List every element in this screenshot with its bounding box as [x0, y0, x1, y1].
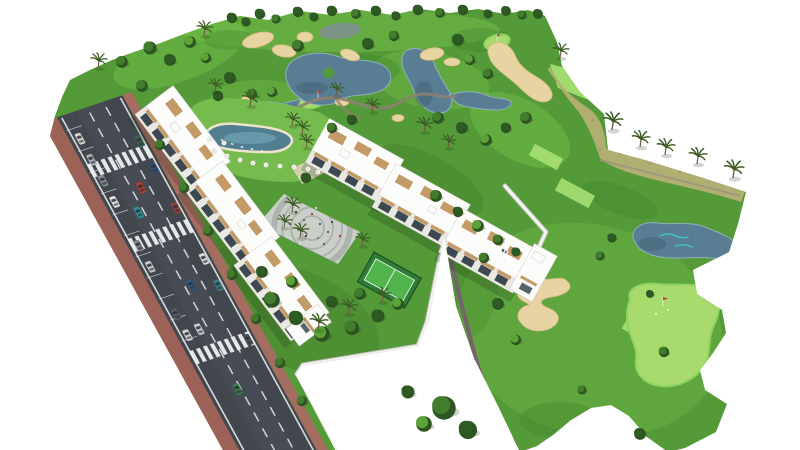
tree: [432, 396, 459, 420]
palm-tree: [632, 131, 650, 151]
tree: [255, 9, 267, 19]
palm-tree: [689, 148, 707, 168]
palm-tree: [725, 160, 744, 182]
putting-green: [627, 284, 719, 387]
tree: [459, 421, 480, 439]
palm-tree: [604, 112, 623, 134]
render-canvas: [0, 0, 800, 450]
tree: [416, 416, 434, 432]
aerial-render: [0, 0, 800, 450]
tree: [401, 385, 416, 398]
palm-tree: [657, 139, 675, 159]
